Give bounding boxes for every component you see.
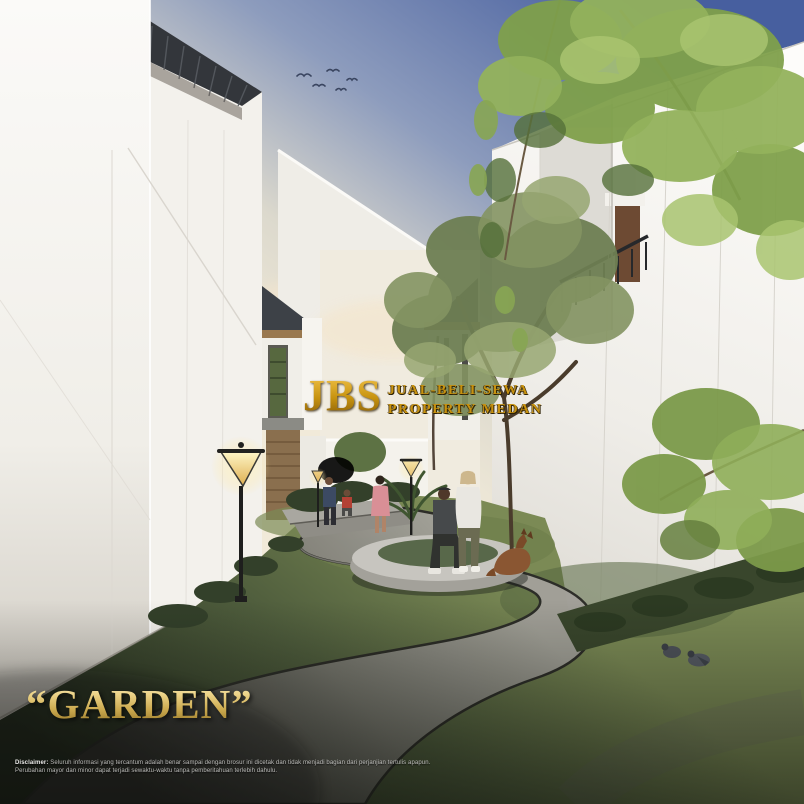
scene-render — [0, 0, 804, 804]
brochure-image: JBS JUAL-BELI-SEWA PROPERTY MEDAN “GARDE… — [0, 0, 804, 804]
